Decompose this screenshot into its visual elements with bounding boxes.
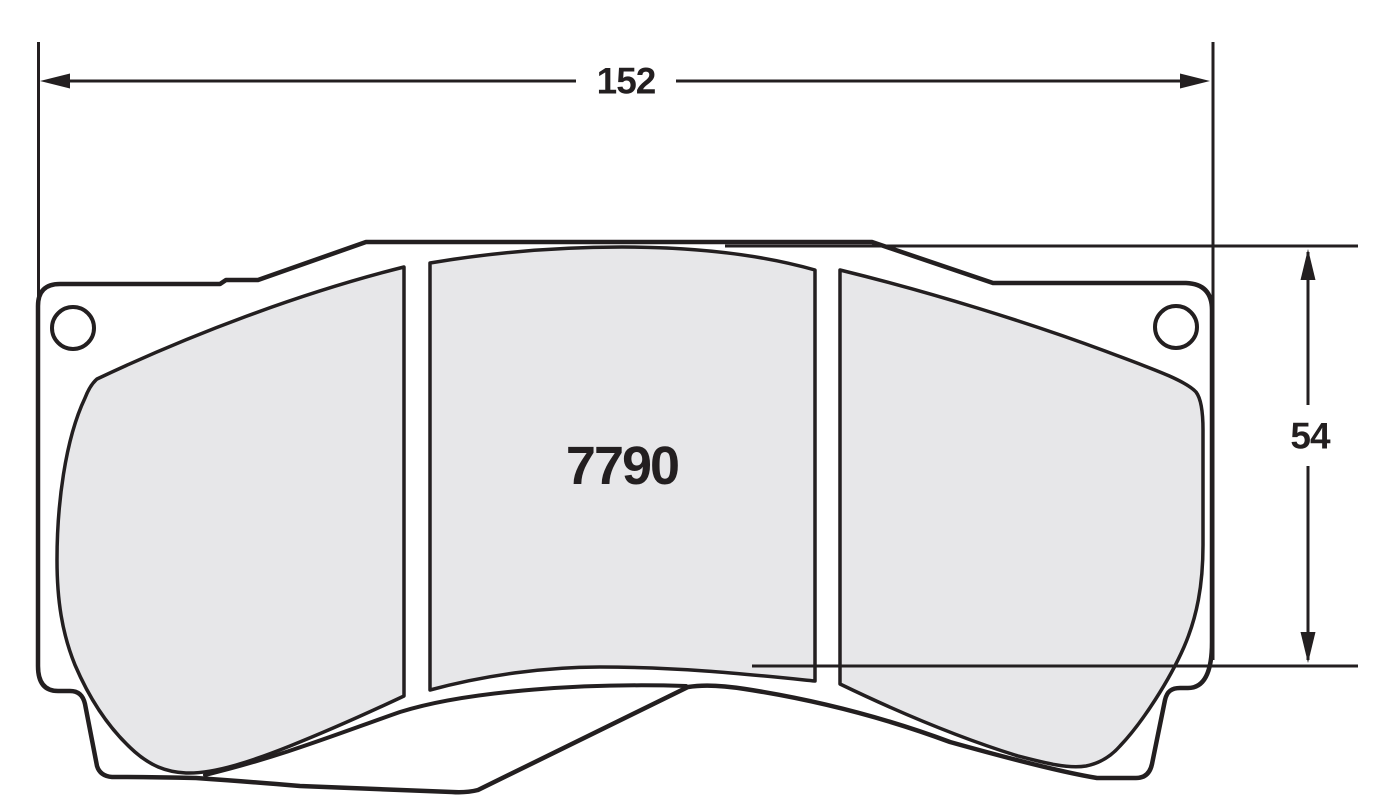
mounting-hole-left	[52, 307, 94, 349]
height-dimension-label: 54	[1290, 416, 1331, 457]
part-number-label: 7790	[566, 436, 678, 496]
mounting-hole-right	[1155, 306, 1197, 348]
arrowhead-down-icon	[1301, 632, 1316, 663]
drawing-page: 152 54 7790	[0, 0, 1385, 810]
arrowhead-left-icon	[40, 74, 70, 89]
technical-drawing-canvas: 152 54 7790	[0, 0, 1385, 810]
brake-pad-drawing	[38, 242, 1212, 792]
width-dimension-label: 152	[597, 61, 656, 102]
arrowhead-right-icon	[1180, 74, 1210, 89]
arrowhead-up-icon	[1301, 249, 1316, 280]
